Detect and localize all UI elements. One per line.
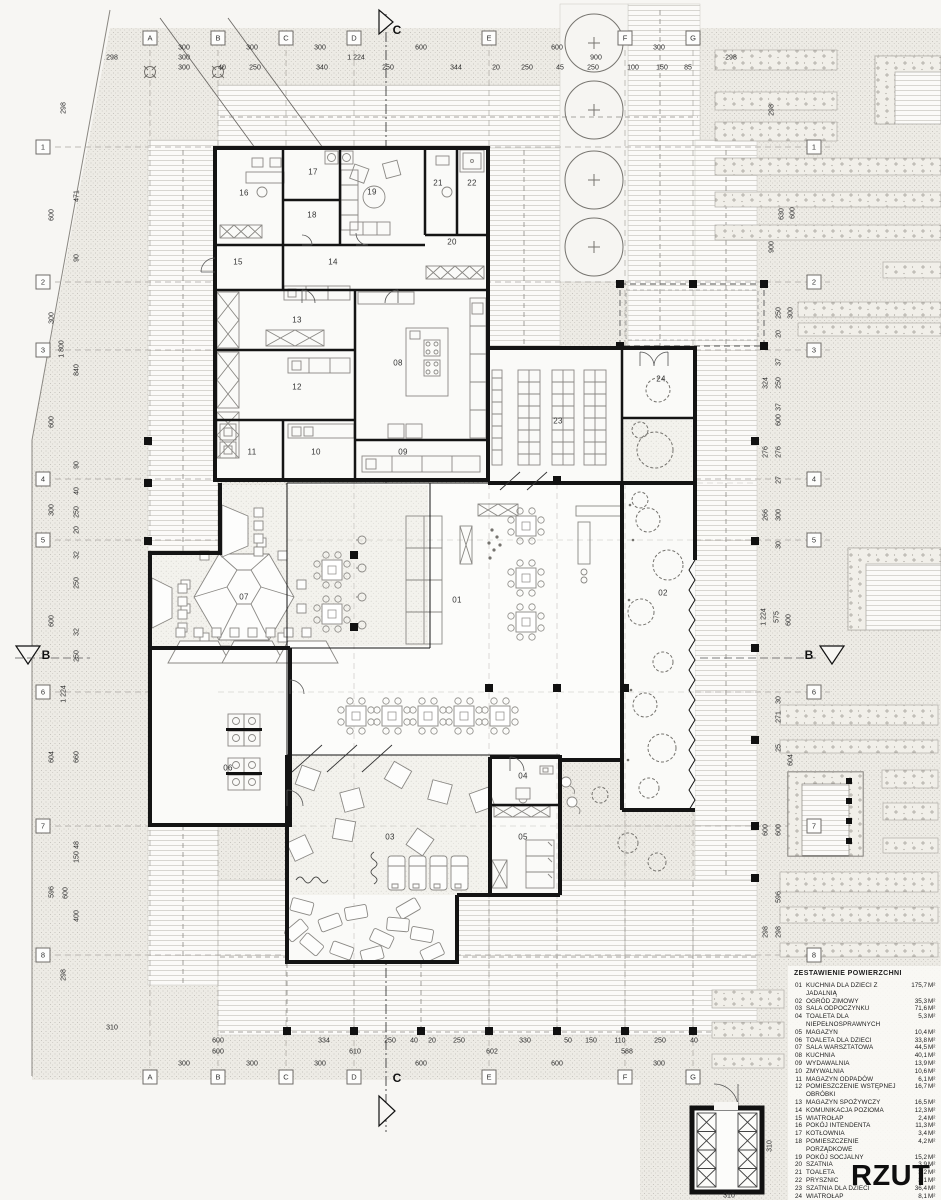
dimension-text: 300 — [788, 307, 795, 319]
legend-row: 05 MAGAZYN 10,4 M² — [788, 1029, 941, 1037]
dimension-text: 630 — [779, 208, 786, 220]
dimension-text: 330 — [519, 1038, 531, 1045]
legend-row: 06 TOALETA DLA DZIECI 33,8 M² — [788, 1037, 941, 1045]
dimension-text: 310 — [767, 1140, 774, 1152]
dimension-text: 300 — [178, 65, 190, 72]
dimension-text: 40 — [690, 1038, 698, 1045]
legend-row: 24 WIATROŁAP 8,1 M² — [788, 1193, 941, 1200]
grid-bubble: 2 — [807, 275, 822, 290]
room-number: 15 — [233, 258, 243, 267]
dimension-text: 40 — [218, 65, 226, 72]
dimension-text: 600 — [49, 416, 56, 428]
dimension-text: 250 — [249, 65, 261, 72]
dimension-text: 32 — [74, 551, 81, 559]
room-number: 18 — [307, 211, 317, 220]
grid-bubble: A — [143, 1070, 158, 1085]
pergola-box — [788, 772, 863, 856]
grid-bubble: 1 — [36, 140, 51, 155]
dimension-text: 1 224 — [61, 685, 68, 703]
dimension-text: 334 — [318, 1038, 330, 1045]
dimension-text: 150 — [656, 65, 668, 72]
section-letter: C — [393, 23, 402, 37]
dimension-text: 660 — [74, 751, 81, 763]
grid-bubble: 8 — [807, 948, 822, 963]
ne-deck-b — [628, 4, 700, 348]
legend-row: 04 TOALETA DLA NIEPEŁNOSPRAWNYCH 5,3 M² — [788, 1013, 941, 1029]
legend-row: 01 KUCHNIA DLA DZIECI Z JADALNIĄ 175,7 M… — [788, 982, 941, 998]
grid-bubble: B — [211, 31, 226, 46]
dimension-text: 600 — [551, 1061, 563, 1068]
dimension-text: 250 — [453, 1038, 465, 1045]
legend-row: 18 POMIESZCZENIE PORZĄDKOWE 4,2 M² — [788, 1138, 941, 1154]
legend-row: 08 KUCHNIA 40,1 M² — [788, 1052, 941, 1060]
room-number: 01 — [452, 596, 462, 605]
dimension-text: 30 — [776, 696, 783, 704]
dimension-text: 588 — [621, 1049, 633, 1056]
dimension-text: 37 — [776, 403, 783, 411]
section-letter: B — [805, 648, 814, 662]
room-number: 12 — [292, 383, 302, 392]
dimension-text: 20 — [74, 526, 81, 534]
dimension-text: 276 — [776, 446, 783, 458]
room-number: 20 — [447, 238, 457, 247]
dimension-text: 40 — [74, 487, 81, 495]
room-number: 03 — [385, 833, 395, 842]
dimension-text: 340 — [316, 65, 328, 72]
dimension-text: 900 — [769, 241, 776, 253]
dimension-text: 600 — [49, 209, 56, 221]
dimension-text: 610 — [349, 1049, 361, 1056]
grid-bubble: 7 — [36, 819, 51, 834]
dimension-text: 250 — [384, 1038, 396, 1045]
dimension-text: 596 — [49, 886, 56, 898]
dimension-text: 298 — [61, 969, 68, 981]
grid-bubble: G — [686, 31, 701, 46]
section-letter: B — [42, 648, 51, 662]
room-number: 11 — [248, 448, 257, 457]
dimension-text: 600 — [49, 615, 56, 627]
dimension-text: 600 — [212, 1038, 224, 1045]
drawing-title: RZUT — [851, 1160, 930, 1193]
dimension-text: 276 — [763, 446, 770, 458]
grid-bubble: 5 — [36, 533, 51, 548]
dimension-text: 310 — [723, 1193, 735, 1200]
dimension-text: 600 — [776, 414, 783, 426]
grid-bubble: 4 — [36, 472, 51, 487]
grid-bubble: 2 — [36, 275, 51, 290]
dimension-text: 600 — [786, 614, 793, 626]
dimension-text: 900 — [590, 55, 602, 62]
dimension-text: 298 — [106, 55, 118, 62]
floor-plan-sheet: 3003003006006003002983001 22490029830040… — [0, 0, 941, 1200]
grid-bubble: 1 — [807, 140, 822, 155]
grid-bubble: B — [211, 1070, 226, 1085]
room-number: 02 — [658, 589, 668, 598]
dimension-text: 344 — [450, 65, 462, 72]
winter-garden-floor — [622, 483, 695, 810]
dimension-text: 300 — [178, 55, 190, 62]
legend-row: 11 MAGAZYN ODPADÓW 6,1 M² — [788, 1076, 941, 1084]
room-number: 21 — [433, 179, 443, 188]
legend-row: 17 KOTŁOWNIA 3,4 M² — [788, 1130, 941, 1138]
section-letter: C — [393, 1071, 402, 1085]
dimension-text: 600 — [212, 1049, 224, 1056]
dimension-text: 602 — [486, 1049, 498, 1056]
dimension-text: 85 — [684, 65, 692, 72]
dimension-text: 600 — [415, 1061, 427, 1068]
dimension-text: 596 — [776, 891, 783, 903]
legend-row: 03 SALA ODPOCZYNKU 71,6 M² — [788, 1005, 941, 1013]
dimension-text: 1 224 — [761, 608, 768, 626]
dimension-text: 1 800 — [59, 340, 66, 358]
grid-bubble: G — [686, 1070, 701, 1085]
room-number: 07 — [239, 593, 249, 602]
dimension-text: 471 — [74, 190, 81, 202]
room-number: 23 — [553, 417, 563, 426]
room-number: 05 — [518, 833, 528, 842]
grid-bubble: D — [347, 1070, 362, 1085]
dimension-text: 298 — [769, 104, 776, 116]
dimension-text: 300 — [314, 45, 326, 52]
dimension-text: 30 — [776, 541, 783, 549]
dimension-text: 575 — [774, 611, 781, 623]
legend-row: 10 ZMYWALNIA 10,6 M² — [788, 1068, 941, 1076]
dimension-text: 600 — [763, 824, 770, 836]
dimension-text: 25 — [776, 744, 783, 752]
dimension-text: 32 — [74, 628, 81, 636]
room-number: 19 — [367, 188, 377, 197]
dimension-text: 48 — [74, 841, 81, 849]
dimension-text: 250 — [74, 506, 81, 518]
grid-bubble: E — [482, 1070, 497, 1085]
dimension-text: 300 — [776, 509, 783, 521]
grid-bubble: E — [482, 31, 497, 46]
dimension-text: 300 — [49, 504, 56, 516]
legend-title: ZESTAWIENIE POWIERZCHNI — [794, 970, 941, 977]
dimension-text: 600 — [776, 824, 783, 836]
dimension-text: 20 — [776, 330, 783, 338]
dimension-text: 298 — [776, 926, 783, 938]
dimension-text: 1 224 — [347, 55, 365, 62]
grid-bubble: 7 — [807, 819, 822, 834]
dimension-text: 250 — [587, 65, 599, 72]
dimension-text: 300 — [246, 1061, 258, 1068]
grid-bubble: 5 — [807, 533, 822, 548]
room-number: 17 — [308, 168, 318, 177]
dimension-text: 150 — [74, 851, 81, 863]
room-number: 22 — [467, 179, 477, 188]
outbuilding — [692, 1102, 762, 1192]
dimension-text: 400 — [74, 910, 81, 922]
room-number: 13 — [292, 316, 302, 325]
corner-bed-box — [875, 56, 941, 124]
dimension-text: 250 — [74, 577, 81, 589]
dimension-text: 40 — [410, 1038, 418, 1045]
dimension-text: 300 — [246, 45, 258, 52]
dimension-text: 300 — [49, 312, 56, 324]
dimension-text: 300 — [653, 45, 665, 52]
mid-bed-box — [848, 548, 941, 630]
grid-bubble: D — [347, 31, 362, 46]
room-number: 09 — [398, 448, 408, 457]
legend-row: 09 WYDAWALNIA 13,9 M² — [788, 1060, 941, 1068]
room-number: 06 — [223, 764, 233, 773]
dimension-text: 20 — [492, 65, 500, 72]
grid-bubble: F — [618, 31, 633, 46]
dimension-text: 37 — [776, 358, 783, 366]
dimension-text: 324 — [763, 377, 770, 389]
grid-bubble: 4 — [807, 472, 822, 487]
dimension-text: 250 — [776, 377, 783, 389]
garden-patch — [623, 420, 694, 482]
dimension-text: 604 — [788, 754, 795, 766]
room-number: 08 — [393, 359, 403, 368]
dimension-text: 250 — [74, 650, 81, 662]
dimension-text: 110 — [614, 1038, 625, 1045]
dimension-text: 298 — [725, 55, 737, 62]
dimension-text: 300 — [178, 45, 190, 52]
room-number: 10 — [311, 448, 321, 457]
dimension-text: 250 — [654, 1038, 666, 1045]
dimension-text: 298 — [61, 102, 68, 114]
dimension-text: 600 — [790, 207, 797, 219]
dimension-text: 600 — [551, 45, 563, 52]
dimension-text: 90 — [74, 461, 81, 469]
grid-bubble: 3 — [36, 343, 51, 358]
room-number: 16 — [239, 189, 249, 198]
dimension-text: 90 — [74, 254, 81, 262]
legend-row: 14 KOMUNIKACJA POZIOMA 12,3 M² — [788, 1107, 941, 1115]
dimension-text: 271 — [776, 711, 783, 723]
grid-bubble: A — [143, 31, 158, 46]
dimension-text: 300 — [178, 1061, 190, 1068]
room-number: 24 — [656, 375, 666, 384]
grid-bubble: 3 — [807, 343, 822, 358]
dimension-text: 150 — [585, 1038, 597, 1045]
dimension-text: 20 — [428, 1038, 436, 1045]
grid-bubble: 6 — [36, 685, 51, 700]
grid-bubble: F — [618, 1070, 633, 1085]
dimension-text: 310 — [106, 1025, 118, 1032]
dimension-text: 250 — [382, 65, 394, 72]
legend-row: 12 POMIESZCZENIE WSTĘPNEJ OBRÓBKI 16,7 M… — [788, 1083, 941, 1099]
legend-row: 13 MAGAZYN SPOŻYWCZY 16,5 M² — [788, 1099, 941, 1107]
dimension-text: 600 — [415, 45, 427, 52]
dimension-text: 298 — [763, 926, 770, 938]
dimension-text: 250 — [521, 65, 533, 72]
dimension-text: 300 — [653, 1061, 665, 1068]
dimension-text: 27 — [776, 476, 783, 484]
dimension-text: 300 — [314, 1061, 326, 1068]
grid-bubble: C — [279, 1070, 294, 1085]
grid-bubble: 6 — [807, 685, 822, 700]
dimension-text: 250 — [776, 307, 783, 319]
grid-bubble: 8 — [36, 948, 51, 963]
dimension-text: 600 — [63, 887, 70, 899]
dimension-text: 100 — [627, 65, 639, 72]
legend-row: 16 POKÓJ INTENDENTA 11,3 M² — [788, 1122, 941, 1130]
dimension-text: 840 — [74, 364, 81, 376]
legend-row: 07 SALA WARSZTATOWA 44,5 M² — [788, 1044, 941, 1052]
room-number: 14 — [328, 258, 338, 267]
legend-row: 02 OGRÓD ZIMOWY 35,3 M² — [788, 998, 941, 1006]
grid-bubble: C — [279, 31, 294, 46]
room-number: 04 — [518, 772, 528, 781]
dimension-text: 604 — [49, 751, 56, 763]
dimension-text: 266 — [763, 509, 770, 521]
dimension-text: 50 — [564, 1038, 572, 1045]
dimension-text: 45 — [556, 65, 564, 72]
toilet-floor — [150, 648, 290, 825]
